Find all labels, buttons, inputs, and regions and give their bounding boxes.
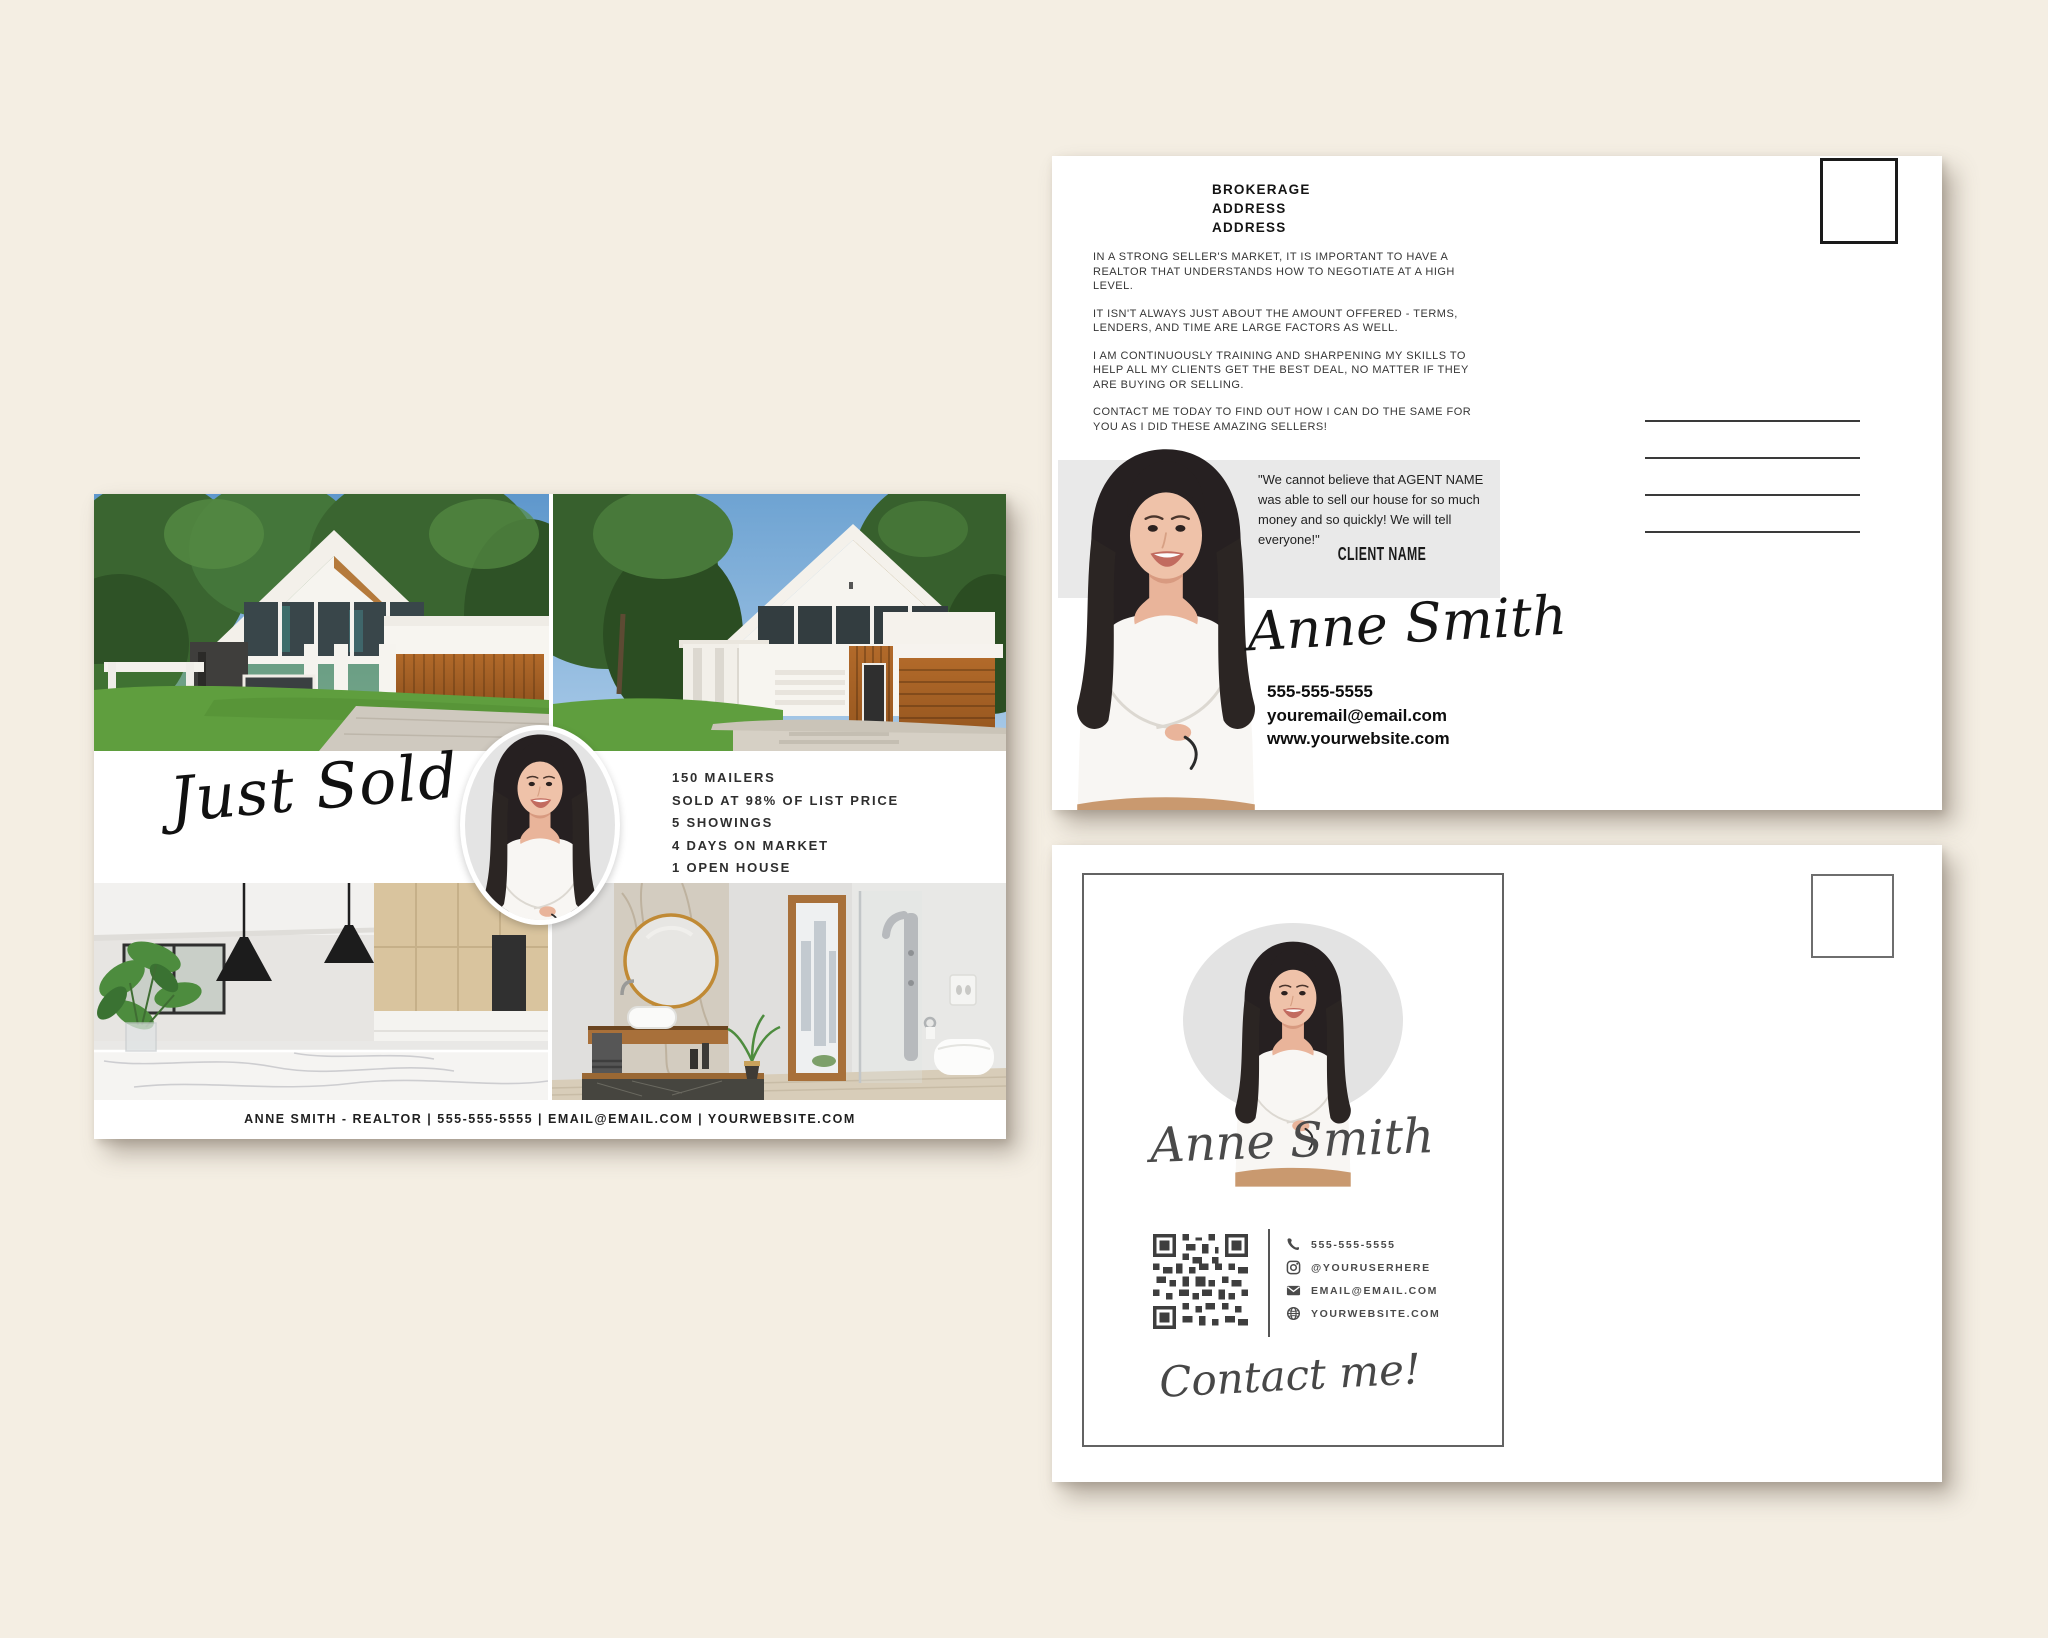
house-photo-right — [553, 494, 1006, 751]
contact-label: YOURWEBSITE.COM — [1311, 1308, 1440, 1320]
contact-divider-line — [1268, 1229, 1270, 1337]
contact-row-email: EMAIL@EMAIL.COM — [1286, 1279, 1440, 1302]
address-line — [1645, 457, 1860, 459]
agent-portrait-circle — [460, 725, 620, 925]
agent-phone: 555-555-5555 — [1267, 680, 1450, 704]
stamp-box — [1811, 874, 1894, 958]
stat-item: 5 SHOWINGS — [672, 812, 899, 835]
front-top-photo-band — [94, 494, 1006, 751]
agent-email: youremail@email.com — [1267, 704, 1450, 728]
postcard-back: BROKERAGE ADDRESS ADDRESS IN A STRONG SE… — [1052, 156, 1942, 810]
address-line — [1645, 531, 1860, 533]
marketing-paragraph: I AM CONTINUOUSLY TRAINING AND SHARPENIN… — [1093, 349, 1493, 393]
agent-photo — [465, 730, 615, 920]
stat-item: SOLD AT 98% OF LIST PRICE — [672, 790, 899, 813]
stamp-box — [1820, 158, 1898, 244]
postcard-front: Just Sold 150 MAILERS SOLD AT 98% OF LIS… — [94, 494, 1006, 1139]
marketing-paragraph: IT ISN'T ALWAYS JUST ABOUT THE AMOUNT OF… — [1093, 307, 1493, 336]
contact-label: EMAIL@EMAIL.COM — [1311, 1285, 1438, 1297]
instagram-icon — [1286, 1260, 1301, 1275]
contact-row-website: YOURWEBSITE.COM — [1286, 1302, 1440, 1325]
email-icon — [1286, 1283, 1301, 1298]
house-photo-left — [94, 494, 549, 751]
stat-item: 1 OPEN HOUSE — [672, 857, 899, 880]
globe-icon — [1286, 1306, 1301, 1321]
agent-website: www.yourwebsite.com — [1267, 727, 1450, 751]
contact-label: @YOURUSERHERE — [1311, 1262, 1431, 1274]
front-footer-contact-line: ANNE SMITH - REALTOR | 555-555-5555 | EM… — [94, 1100, 1006, 1139]
sold-stats-list: 150 MAILERS SOLD AT 98% OF LIST PRICE 5 … — [672, 767, 899, 880]
brokerage-line: BROKERAGE — [1212, 180, 1311, 199]
brokerage-line: ADDRESS — [1212, 199, 1311, 218]
address-line — [1645, 420, 1860, 422]
postcard-contact-back: Anne Smith — [1052, 845, 1942, 1482]
stat-item: 4 DAYS ON MARKET — [672, 835, 899, 858]
contact-label: 555-555-5555 — [1311, 1239, 1396, 1251]
agent-signature: Anne Smith — [1141, 1108, 1443, 1174]
mailing-address-lines — [1645, 420, 1860, 568]
brokerage-address-block: BROKERAGE ADDRESS ADDRESS — [1212, 180, 1311, 237]
address-line — [1645, 494, 1860, 496]
stat-item: 150 MAILERS — [672, 767, 899, 790]
testimonial-client-name: CLIENT NAME — [1302, 546, 1462, 564]
testimonial-quote: "We cannot believe that AGENT NAME was a… — [1258, 470, 1494, 550]
contact-rows: 555-555-5555 @YOURUSERHERE EMAIL@EMAIL.C… — [1286, 1233, 1440, 1325]
contact-row-instagram: @YOURUSERHERE — [1286, 1256, 1440, 1279]
kitchen-photo — [94, 883, 548, 1100]
marketing-paragraph: CONTACT ME TODAY TO FIND OUT HOW I CAN D… — [1093, 405, 1493, 434]
design-canvas: Just Sold 150 MAILERS SOLD AT 98% OF LIS… — [0, 0, 2048, 1638]
brokerage-line: ADDRESS — [1212, 218, 1311, 237]
agent-contact-block: 555-555-5555 youremail@email.com www.you… — [1267, 680, 1450, 751]
marketing-copy: IN A STRONG SELLER'S MARKET, IT IS IMPOR… — [1093, 250, 1493, 447]
marketing-paragraph: IN A STRONG SELLER'S MARKET, IT IS IMPOR… — [1093, 250, 1493, 294]
just-sold-title: Just Sold — [151, 737, 476, 838]
phone-icon — [1286, 1237, 1301, 1252]
qr-code — [1153, 1233, 1248, 1330]
bathroom-photo — [552, 883, 1006, 1100]
contact-row-phone: 555-555-5555 — [1286, 1233, 1440, 1256]
